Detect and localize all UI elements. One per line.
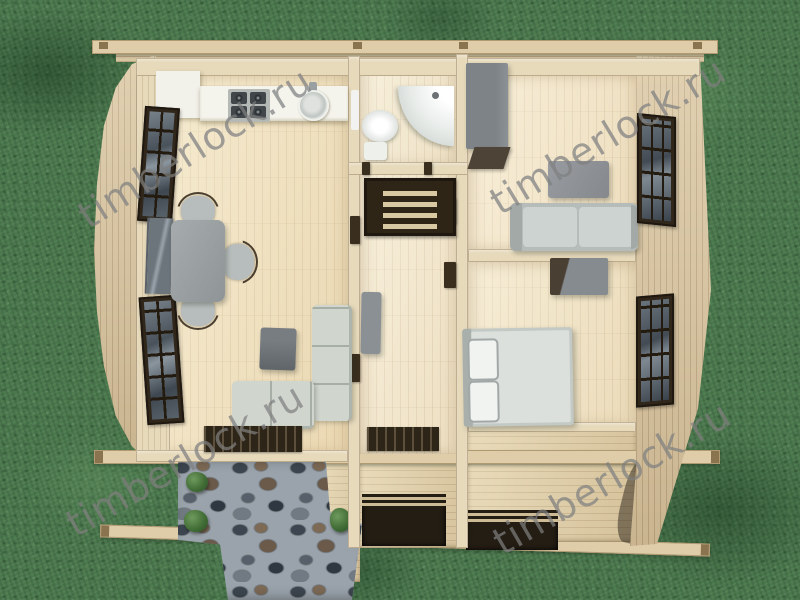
toilet-bowl <box>362 110 398 142</box>
bathroom-radiator <box>351 90 359 130</box>
ridge-post <box>353 42 362 49</box>
wall-tv <box>145 218 174 295</box>
dining-table <box>171 220 225 302</box>
ridge-post <box>459 42 468 49</box>
wardrobe <box>466 63 508 149</box>
door-frame <box>350 216 360 244</box>
beam-cap <box>711 451 719 463</box>
window-panes <box>144 300 179 420</box>
door-frame <box>444 262 456 288</box>
toilet-tank <box>364 142 387 160</box>
sofa-cushion <box>523 207 577 247</box>
beam-cap <box>95 451 103 463</box>
sofa-cushion <box>579 207 633 247</box>
double-bed <box>462 327 574 427</box>
stair-treads <box>383 185 437 229</box>
shower-faucet <box>432 92 439 99</box>
dining-chair-right <box>222 244 254 280</box>
ridge-beam <box>92 40 718 54</box>
tv-stand <box>259 327 296 370</box>
dark-cabinet <box>550 258 608 295</box>
cabin-floorplan-render: timberlock.ru timberlock.ru timberlock.r… <box>0 0 800 600</box>
corner-sofa-vertical <box>312 305 352 421</box>
bed-pillow <box>467 338 499 381</box>
ridge-post <box>693 42 702 49</box>
porch-steps <box>362 494 446 506</box>
beam-cap <box>701 544 709 555</box>
sofa-two-seat <box>510 203 638 251</box>
bush <box>184 510 208 532</box>
window-panes <box>641 299 669 402</box>
porch-opening-left <box>362 494 446 546</box>
wardrobe-front-face <box>467 147 510 169</box>
door-frame <box>424 162 432 175</box>
window-right-bottom <box>636 293 674 407</box>
hallway-console <box>360 292 381 354</box>
bed-pillow <box>468 380 500 423</box>
door-frame <box>362 162 370 175</box>
staircase <box>364 178 456 236</box>
doormat-hallway <box>367 427 439 451</box>
ridge-post <box>99 42 108 49</box>
wall-top-outer <box>136 58 700 76</box>
